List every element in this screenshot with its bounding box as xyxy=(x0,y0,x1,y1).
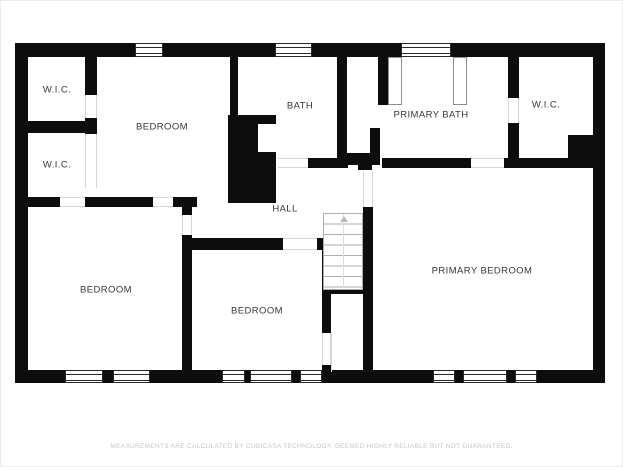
shower-panel xyxy=(453,57,467,105)
wall-bottom-pier xyxy=(507,370,515,383)
door-opening xyxy=(278,158,308,168)
room-label-bedroom-top: BEDROOM xyxy=(136,122,188,133)
floor-plan: W.I.C. W.I.C. BEDROOM BATH PRIMARY BATH … xyxy=(0,0,623,467)
door-opening xyxy=(363,172,373,207)
understairs-closet-line xyxy=(331,333,332,372)
wic-corner-block xyxy=(568,135,601,165)
wall-stairs-stub xyxy=(322,365,331,372)
wall-wic-right-left xyxy=(508,123,519,167)
wall-wic-divider xyxy=(15,121,97,133)
room-label-bath: BATH xyxy=(287,101,313,112)
door-opening xyxy=(508,98,519,123)
wall-right xyxy=(593,43,605,383)
wall-bottom-pier xyxy=(103,370,113,383)
window xyxy=(250,370,292,383)
stairs-up-arrow-icon xyxy=(340,216,348,222)
bath-niche xyxy=(258,124,276,152)
wall-wic-right xyxy=(85,57,97,95)
shower-panel xyxy=(388,57,402,105)
window xyxy=(300,370,322,383)
wall-door-stub xyxy=(358,155,372,170)
wall-wic-right-left xyxy=(508,57,519,98)
window xyxy=(113,370,150,383)
window xyxy=(433,370,455,383)
door-opening xyxy=(471,158,504,168)
wall-hall-primary xyxy=(363,207,373,377)
staircase-guide-line xyxy=(343,214,344,288)
window xyxy=(135,43,163,57)
wall-top xyxy=(451,43,605,57)
wall-bath-right xyxy=(337,57,347,165)
door-opening xyxy=(153,197,173,207)
wall-bottom xyxy=(150,370,222,383)
wall-suite-divider xyxy=(382,158,471,168)
disclaimer-text: MEASUREMENTS ARE CALCULATED BY CUBICASA … xyxy=(0,443,623,450)
window xyxy=(401,43,451,57)
wall-top xyxy=(15,43,135,57)
room-label-wic-top-left: W.I.C. xyxy=(43,85,71,96)
door-opening xyxy=(283,238,317,250)
door-opening xyxy=(85,134,97,188)
wall-bottom xyxy=(322,370,433,383)
wall-bottom-pier xyxy=(292,370,300,383)
window xyxy=(275,43,312,57)
window xyxy=(222,370,245,383)
wall-bedroom-bath xyxy=(230,57,238,115)
wall-bedroom-divider-stub xyxy=(182,197,192,215)
wall-midbedroom-top xyxy=(183,238,283,250)
room-label-bedroom-bottom-middle: BEDROOM xyxy=(231,306,283,317)
window xyxy=(463,370,507,383)
wall-left xyxy=(15,43,28,383)
room-label-wic-bottom-left: W.I.C. xyxy=(43,160,71,171)
door-opening xyxy=(182,215,192,235)
room-label-primary-bath: PRIMARY BATH xyxy=(393,110,468,121)
wall-primary-bath-left xyxy=(378,43,388,105)
wall-top xyxy=(163,43,275,57)
door-opening xyxy=(85,95,97,118)
wall-mid-left xyxy=(85,197,153,207)
wall-bedroom-divider xyxy=(182,235,192,370)
window xyxy=(515,370,537,383)
room-label-wic-top-right: W.I.C. xyxy=(532,100,560,111)
door-opening xyxy=(60,197,85,207)
wall-bottom-pier xyxy=(455,370,463,383)
wall-bottom xyxy=(537,370,605,383)
room-label-bedroom-bottom-left: BEDROOM xyxy=(80,285,132,296)
room-label-primary-bedroom: PRIMARY BEDROOM xyxy=(432,266,533,277)
door-opening xyxy=(322,333,331,365)
window xyxy=(65,370,103,383)
room-label-hall: HALL xyxy=(272,204,297,215)
wall-bottom xyxy=(15,370,65,383)
wall-mid-left xyxy=(15,197,60,207)
